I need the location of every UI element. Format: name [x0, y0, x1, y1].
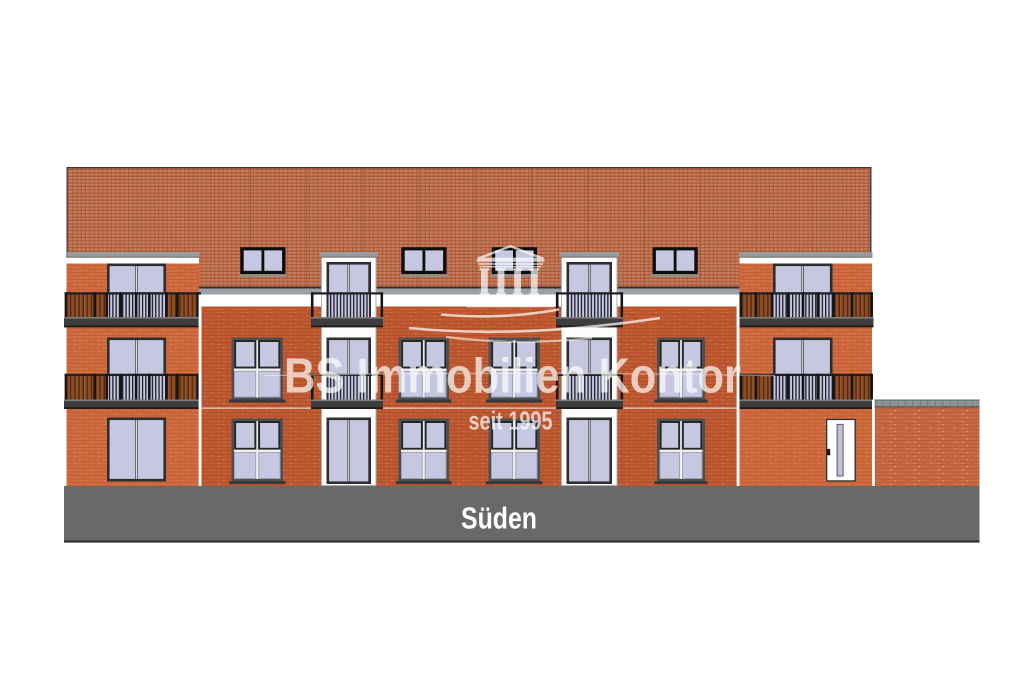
svg-text:BS Immobilien Kontor: BS Immobilien Kontor	[284, 350, 741, 404]
svg-text:Süden: Süden	[461, 502, 537, 536]
svg-text:seit 1995: seit 1995	[469, 406, 553, 436]
